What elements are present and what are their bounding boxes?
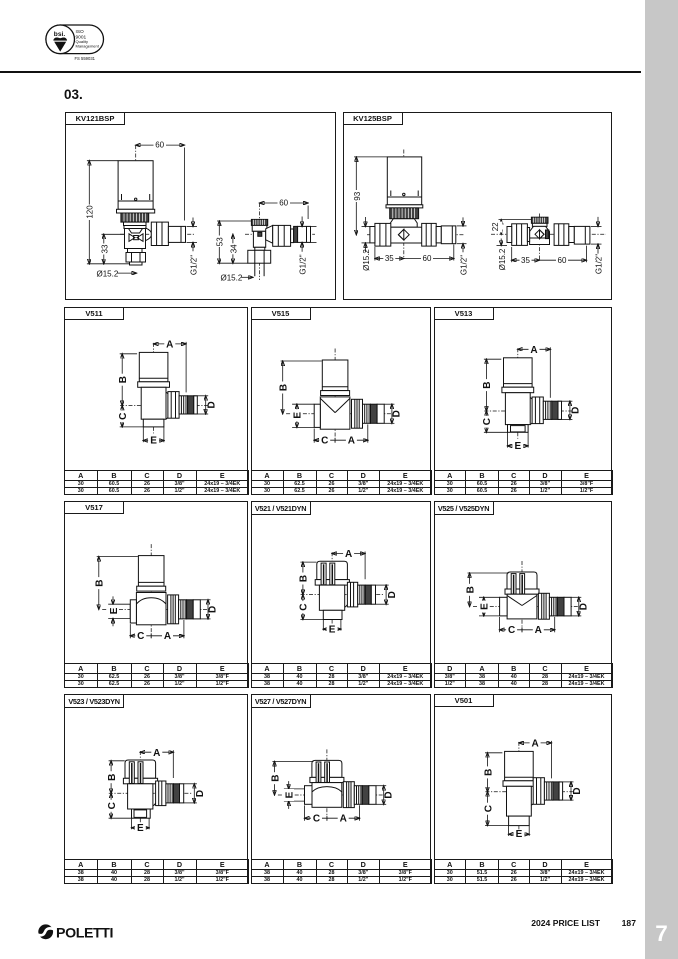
svg-text:G1/2": G1/2" (190, 254, 199, 274)
svg-text:G1/2": G1/2" (299, 254, 308, 274)
svg-text:Ø15.2: Ø15.2 (497, 248, 506, 270)
svg-text:33: 33 (100, 244, 109, 253)
svg-text:60: 60 (557, 255, 566, 264)
svg-text:60: 60 (155, 140, 164, 149)
svg-text:120: 120 (85, 204, 94, 218)
svg-text:Ø15.2: Ø15.2 (97, 269, 119, 278)
svg-text:bsi.: bsi. (54, 31, 66, 38)
svg-text:35: 35 (384, 254, 393, 263)
svg-text:35: 35 (521, 255, 530, 264)
svg-text:Ø15.2: Ø15.2 (362, 248, 371, 270)
svg-text:34: 34 (229, 243, 238, 252)
svg-text:ISO: ISO (76, 29, 85, 35)
svg-text:FS 559031: FS 559031 (75, 56, 96, 61)
svg-text:22: 22 (491, 221, 500, 230)
svg-text:60: 60 (279, 198, 288, 207)
svg-text:POLETTI: POLETTI (56, 926, 113, 940)
svg-text:Management: Management (76, 43, 100, 48)
svg-text:93: 93 (352, 191, 361, 200)
svg-text:60: 60 (422, 254, 431, 263)
svg-text:Ø15.2: Ø15.2 (221, 273, 243, 282)
svg-text:G1/2": G1/2" (459, 254, 468, 274)
svg-text:53: 53 (215, 236, 224, 245)
svg-text:G1/2": G1/2" (594, 253, 603, 273)
